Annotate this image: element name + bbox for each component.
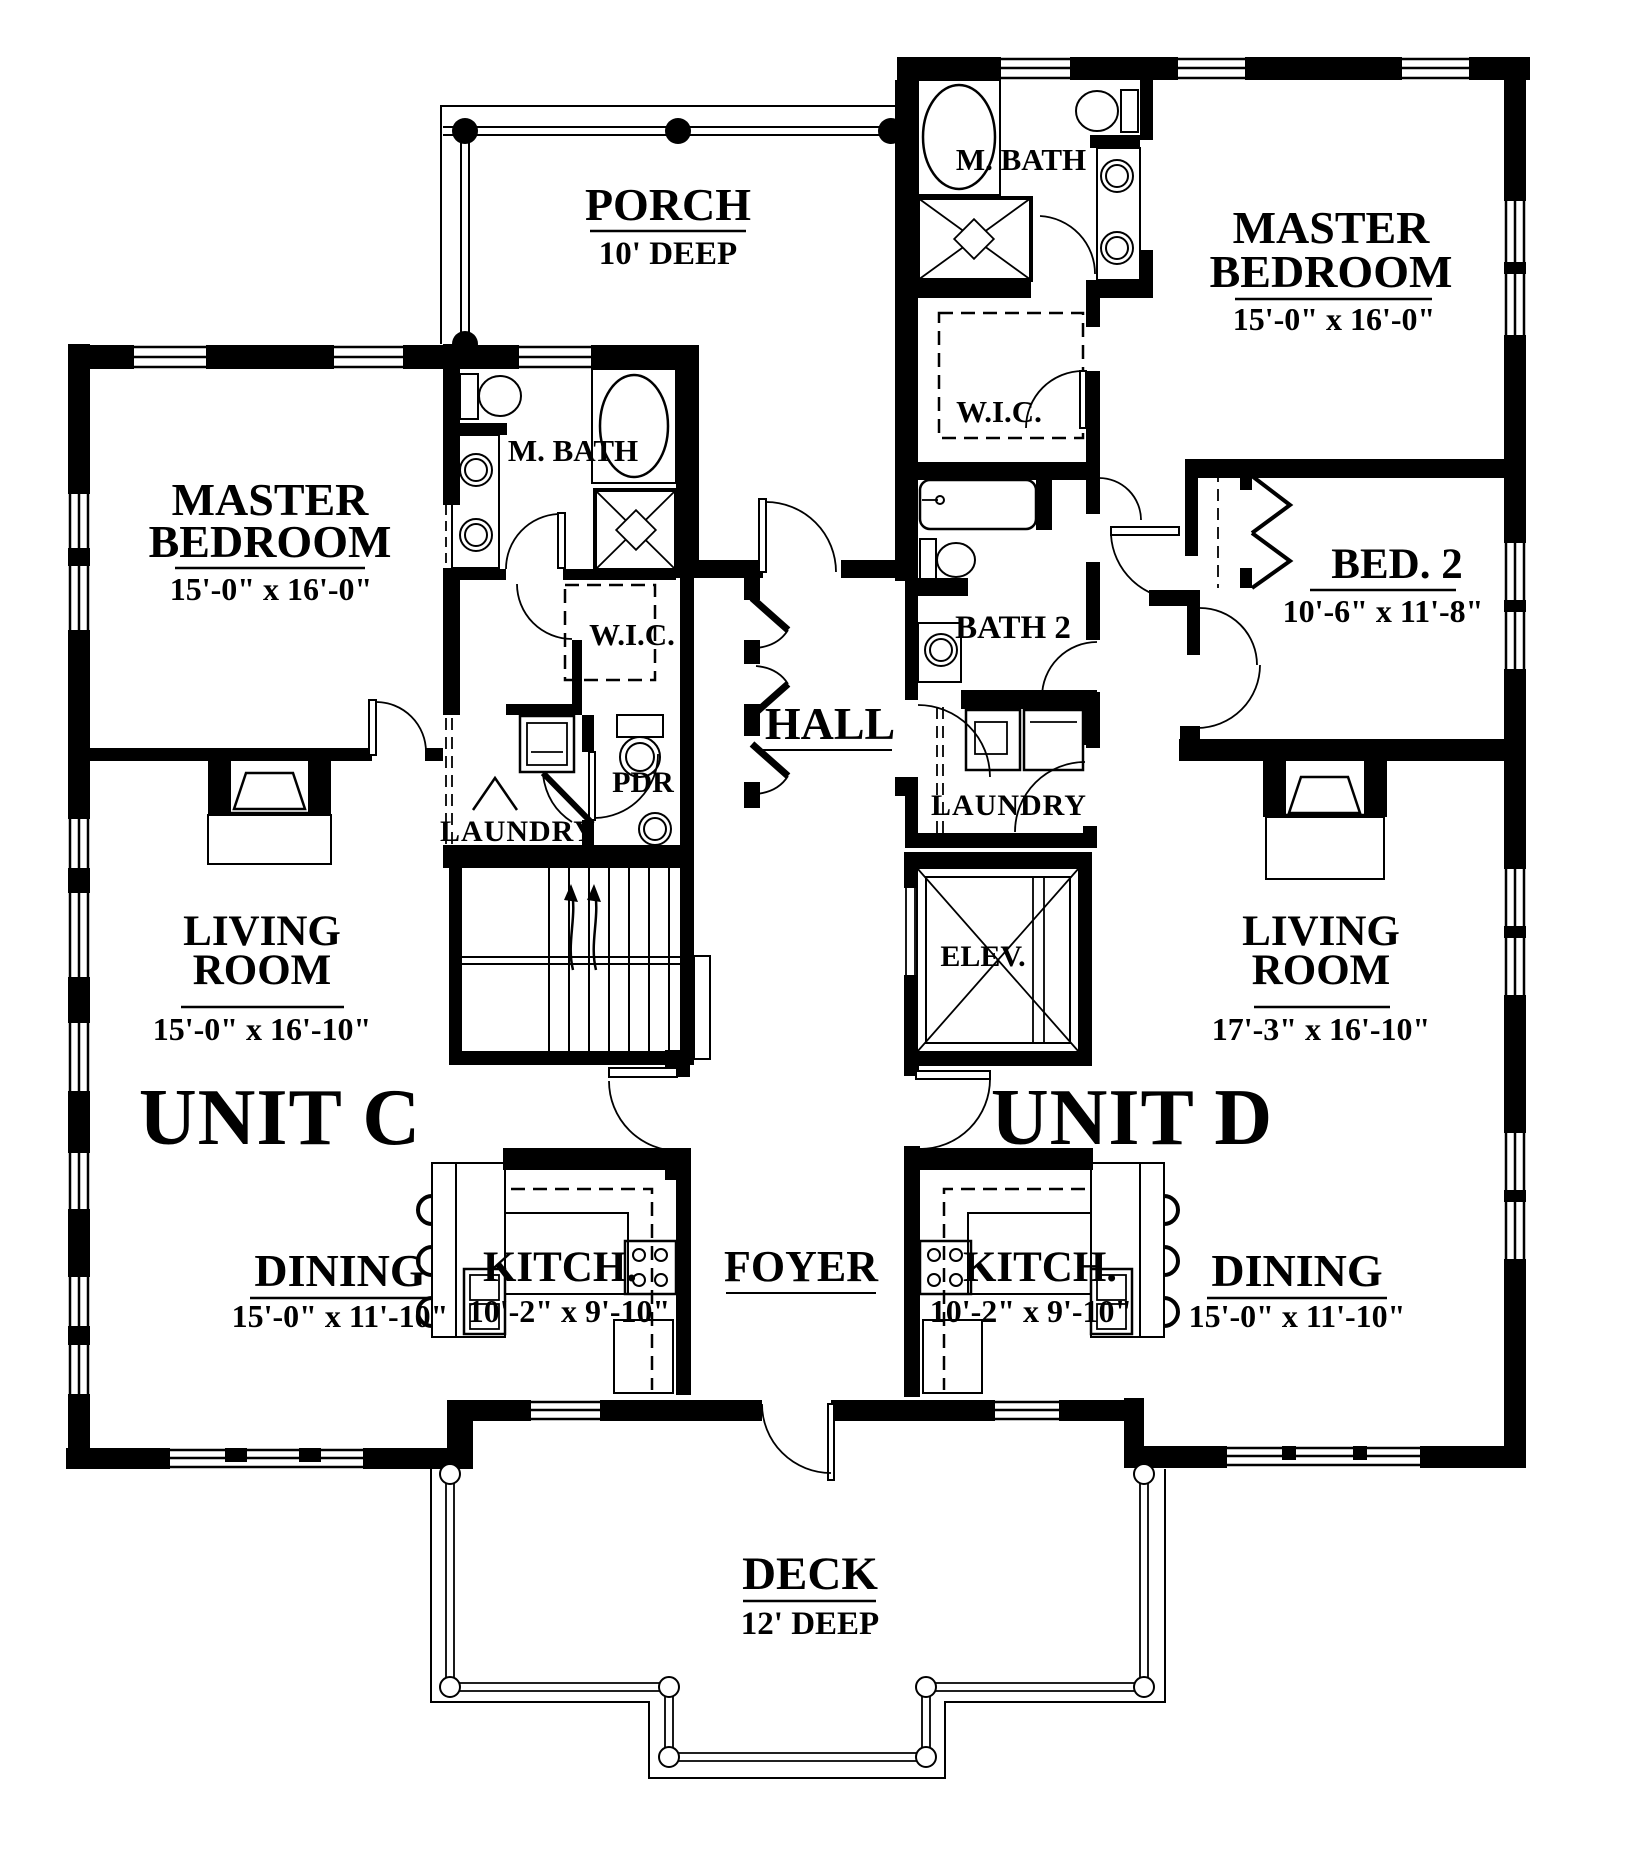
svg-text:BATH 2: BATH 2 [955,610,1071,646]
svg-text:UNIT D: UNIT D [991,1074,1273,1162]
svg-text:15'-0" x 11'-10": 15'-0" x 11'-10" [1189,1298,1406,1334]
svg-text:W.I.C.: W.I.C. [589,617,675,652]
svg-text:DECK: DECK [742,1548,878,1600]
svg-text:15'-0" x 11'-10": 15'-0" x 11'-10" [232,1298,449,1334]
svg-text:15'-0" x 16'-10": 15'-0" x 16'-10" [153,1011,372,1047]
svg-text:15'-0" x 16'-0": 15'-0" x 16'-0" [1233,301,1436,337]
svg-text:15'-0" x 16'-0": 15'-0" x 16'-0" [170,571,373,607]
svg-text:10'-2" x 9'-10": 10'-2" x 9'-10" [930,1293,1133,1329]
svg-text:12' DEEP: 12' DEEP [741,1606,879,1642]
svg-text:10' DEEP: 10' DEEP [599,236,737,272]
svg-text:10'-6" x 11'-8": 10'-6" x 11'-8" [1283,593,1484,629]
svg-text:HALL: HALL [765,698,895,749]
svg-text:17'-3" x 16'-10": 17'-3" x 16'-10" [1212,1011,1431,1047]
svg-text:BED. 2: BED. 2 [1331,541,1462,588]
svg-text:M. BATH: M. BATH [508,433,638,468]
svg-text:PORCH: PORCH [585,179,751,230]
svg-text:BEDROOM: BEDROOM [149,516,392,567]
svg-text:ROOM: ROOM [193,947,332,994]
svg-text:ROOM: ROOM [1252,947,1391,994]
svg-text:FOYER: FOYER [724,1242,879,1291]
svg-text:LAUNDRY: LAUNDRY [931,789,1087,822]
svg-text:DINING: DINING [1211,1245,1382,1296]
svg-text:PDR: PDR [612,766,674,799]
svg-text:DINING: DINING [254,1245,425,1296]
svg-text:UNIT C: UNIT C [139,1074,421,1162]
svg-text:ELEV.: ELEV. [940,940,1025,973]
svg-text:LAUNDRY: LAUNDRY [440,815,596,848]
svg-text:M. BATH: M. BATH [956,142,1086,177]
svg-text:10'-2" x 9'-10": 10'-2" x 9'-10" [468,1293,671,1329]
svg-text:BEDROOM: BEDROOM [1210,246,1453,297]
svg-text:W.I.C.: W.I.C. [956,394,1042,429]
svg-text:KITCH.: KITCH. [963,1244,1117,1291]
svg-text:KITCH.: KITCH. [483,1244,637,1291]
